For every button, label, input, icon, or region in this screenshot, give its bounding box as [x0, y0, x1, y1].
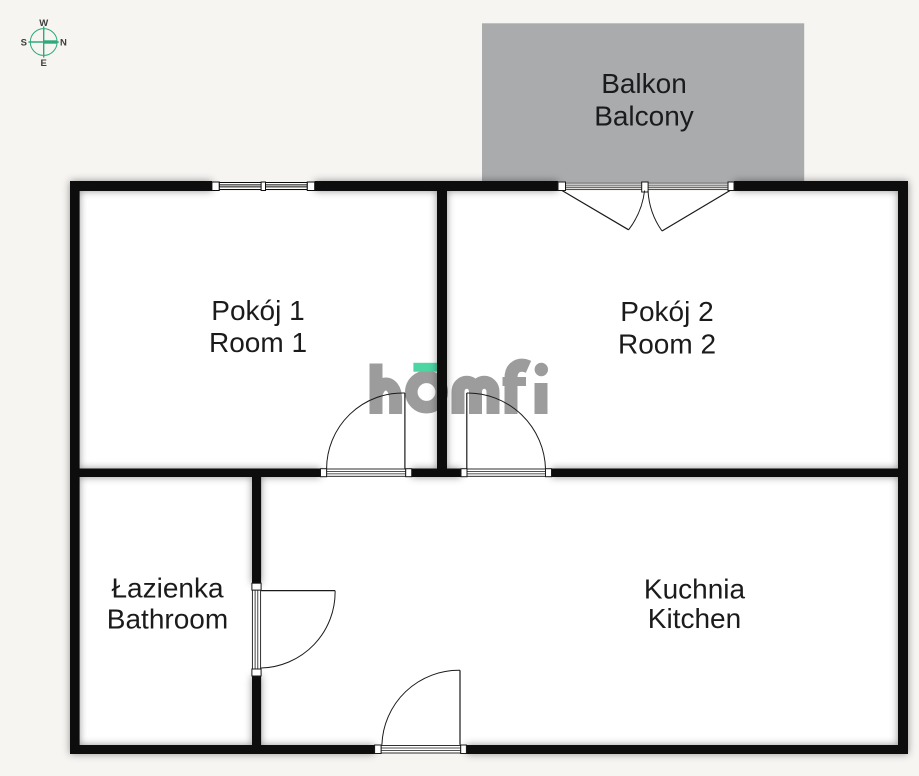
svg-text:Kitchen: Kitchen	[648, 603, 741, 634]
svg-text:Kuchnia: Kuchnia	[644, 574, 746, 605]
svg-text:Bathroom: Bathroom	[107, 604, 228, 635]
svg-text:E: E	[41, 58, 47, 69]
svg-text:S: S	[21, 38, 27, 49]
svg-text:Balcony: Balcony	[594, 101, 694, 132]
svg-text:N: N	[60, 38, 67, 49]
svg-text:Pokój 2: Pokój 2	[620, 296, 713, 327]
svg-text:Room 2: Room 2	[618, 329, 716, 360]
svg-text:W: W	[39, 18, 48, 29]
svg-text:Balkon: Balkon	[601, 68, 687, 99]
svg-text:Room 1: Room 1	[209, 327, 307, 358]
svg-text:Łazienka: Łazienka	[111, 573, 224, 604]
svg-text:Pokój 1: Pokój 1	[211, 295, 304, 326]
